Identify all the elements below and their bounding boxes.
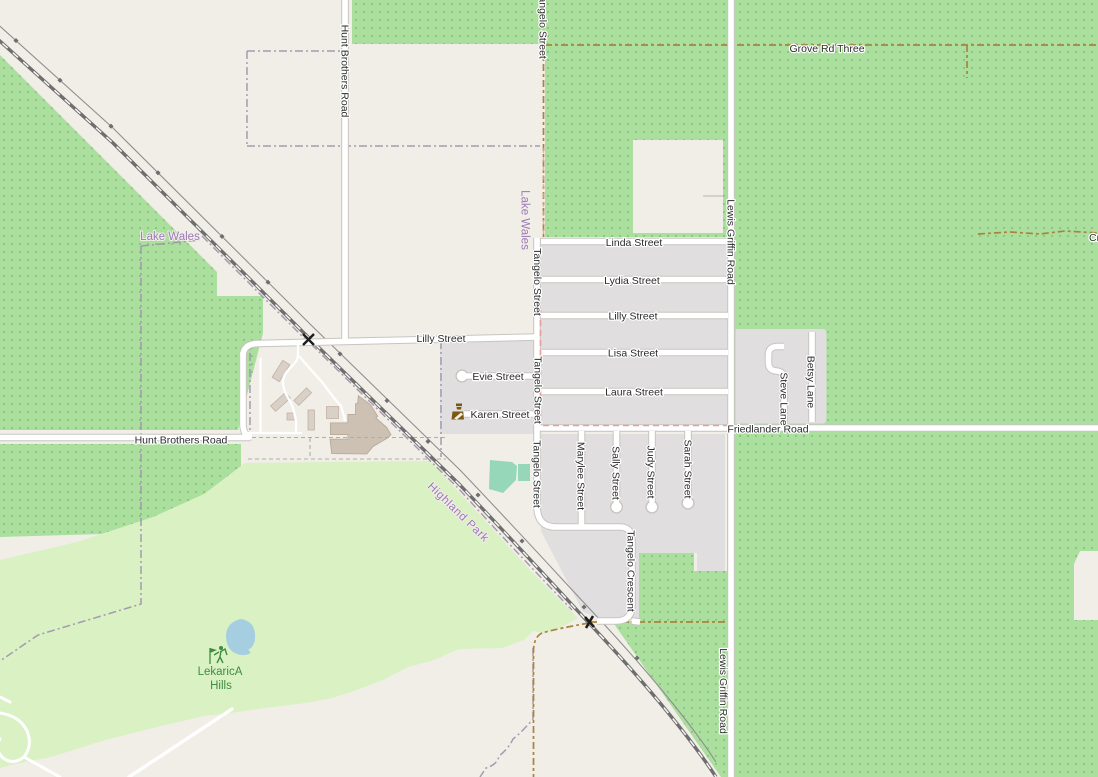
svg-text:Steve Lane: Steve Lane — [778, 372, 790, 425]
svg-text:Grove Rd Three: Grove Rd Three — [789, 43, 864, 55]
svg-text:Friedlander Road: Friedlander Road — [727, 424, 808, 436]
svg-text:Lewis Griffin Road: Lewis Griffin Road — [725, 199, 737, 285]
svg-text:Linda Street: Linda Street — [606, 237, 663, 249]
svg-text:Hunt Brothers Road: Hunt Brothers Road — [339, 25, 351, 118]
svg-text:Lilly Street: Lilly Street — [416, 333, 465, 345]
svg-text:Tangelo Crescent: Tangelo Crescent — [625, 530, 637, 612]
svg-text:Judy Street: Judy Street — [645, 445, 657, 498]
svg-text:Lisa Street: Lisa Street — [608, 348, 658, 360]
svg-text:Cr: Cr — [1089, 232, 1098, 244]
svg-text:Tangelo Street: Tangelo Street — [537, 0, 549, 59]
svg-text:Karen Street: Karen Street — [471, 409, 530, 421]
svg-text:Tangelo Street: Tangelo Street — [531, 248, 543, 316]
svg-text:Lake Wales: Lake Wales — [519, 190, 531, 250]
svg-text:Hills: Hills — [210, 680, 232, 692]
svg-text:Hunt Brothers Road: Hunt Brothers Road — [135, 435, 228, 447]
svg-text:Tangelo Street: Tangelo Street — [531, 440, 543, 508]
svg-text:Sarah Street: Sarah Street — [682, 440, 694, 499]
svg-text:Lilly Street: Lilly Street — [608, 311, 657, 323]
svg-text:Sally Street: Sally Street — [610, 446, 622, 500]
svg-text:Betsy Lane: Betsy Lane — [805, 356, 817, 409]
svg-text:LekaricA: LekaricA — [198, 666, 243, 678]
svg-text:Lydia Street: Lydia Street — [604, 275, 660, 287]
svg-text:Lake Wales: Lake Wales — [140, 231, 200, 243]
svg-text:Evie Street: Evie Street — [472, 371, 523, 383]
svg-text:Laura Street: Laura Street — [605, 387, 663, 399]
svg-text:Lewis Griffin Road: Lewis Griffin Road — [717, 648, 729, 734]
svg-text:Marylee Street: Marylee Street — [575, 442, 587, 510]
svg-text:Tangelo Street: Tangelo Street — [532, 356, 544, 424]
